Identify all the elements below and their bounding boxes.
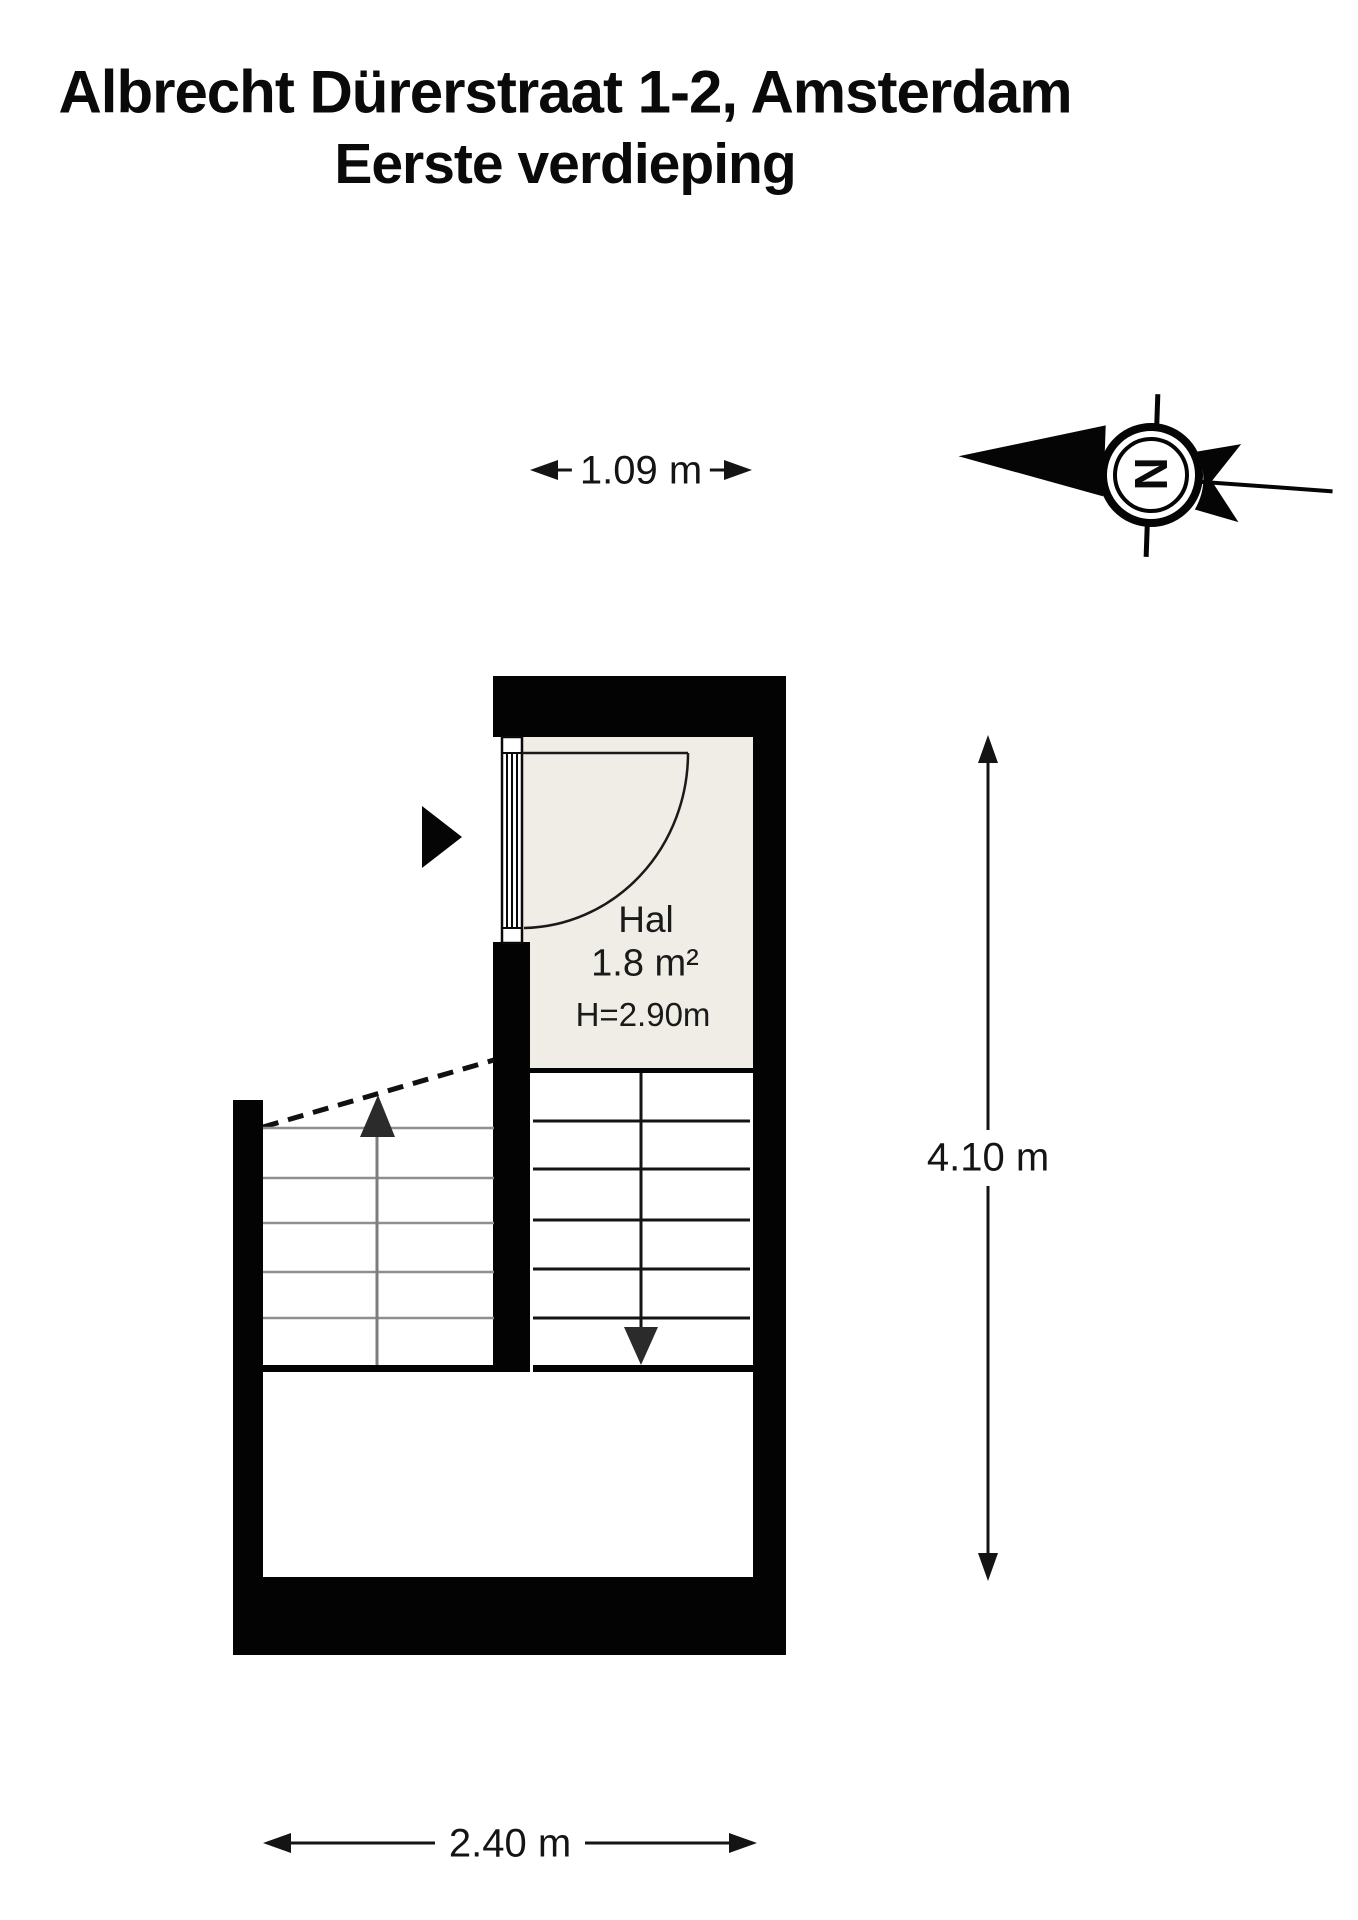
wall-mid-left xyxy=(493,942,530,1372)
room-name-label: Hal xyxy=(618,899,674,941)
dimension-top-label: 1.09 m xyxy=(572,449,710,494)
dimension-bottom-label: 2.40 m xyxy=(441,1822,579,1867)
dim-arrow-left-icon xyxy=(530,460,558,480)
compass-east-line xyxy=(1200,482,1333,492)
page-title: Albrecht Dürerstraat 1-2, Amsterdam xyxy=(58,58,1071,127)
north-needle xyxy=(957,420,1105,496)
dim-arrow-up-icon xyxy=(978,735,998,763)
floorplan-page: Albrecht Dürerstraat 1-2, Amsterdam Eers… xyxy=(0,0,1358,1920)
wall-bottom xyxy=(233,1577,786,1655)
stairs-down-arrow xyxy=(624,1327,658,1365)
wall-right xyxy=(753,676,786,1655)
dim-arrow-right-icon xyxy=(729,1833,757,1853)
entrance-arrow-icon xyxy=(422,806,462,868)
dim-arrow-right-icon xyxy=(724,460,752,480)
dim-arrow-down-icon xyxy=(978,1553,998,1581)
stairs-down-flight xyxy=(522,1068,753,1372)
page-subtitle: Eerste verdieping xyxy=(334,131,795,197)
room-area-label: 1.8 m² xyxy=(591,943,699,986)
wall-top xyxy=(493,676,784,737)
compass-north-letter: N xyxy=(1124,457,1178,490)
wall-left xyxy=(233,1100,263,1655)
stairs-up-arrow xyxy=(360,1095,395,1137)
dim-arrow-left-icon xyxy=(263,1833,291,1853)
stairs-up-flight xyxy=(263,1060,494,1372)
dimension-right-label: 4.10 m xyxy=(919,1136,1057,1181)
room-height-label: H=2.90m xyxy=(576,996,711,1034)
